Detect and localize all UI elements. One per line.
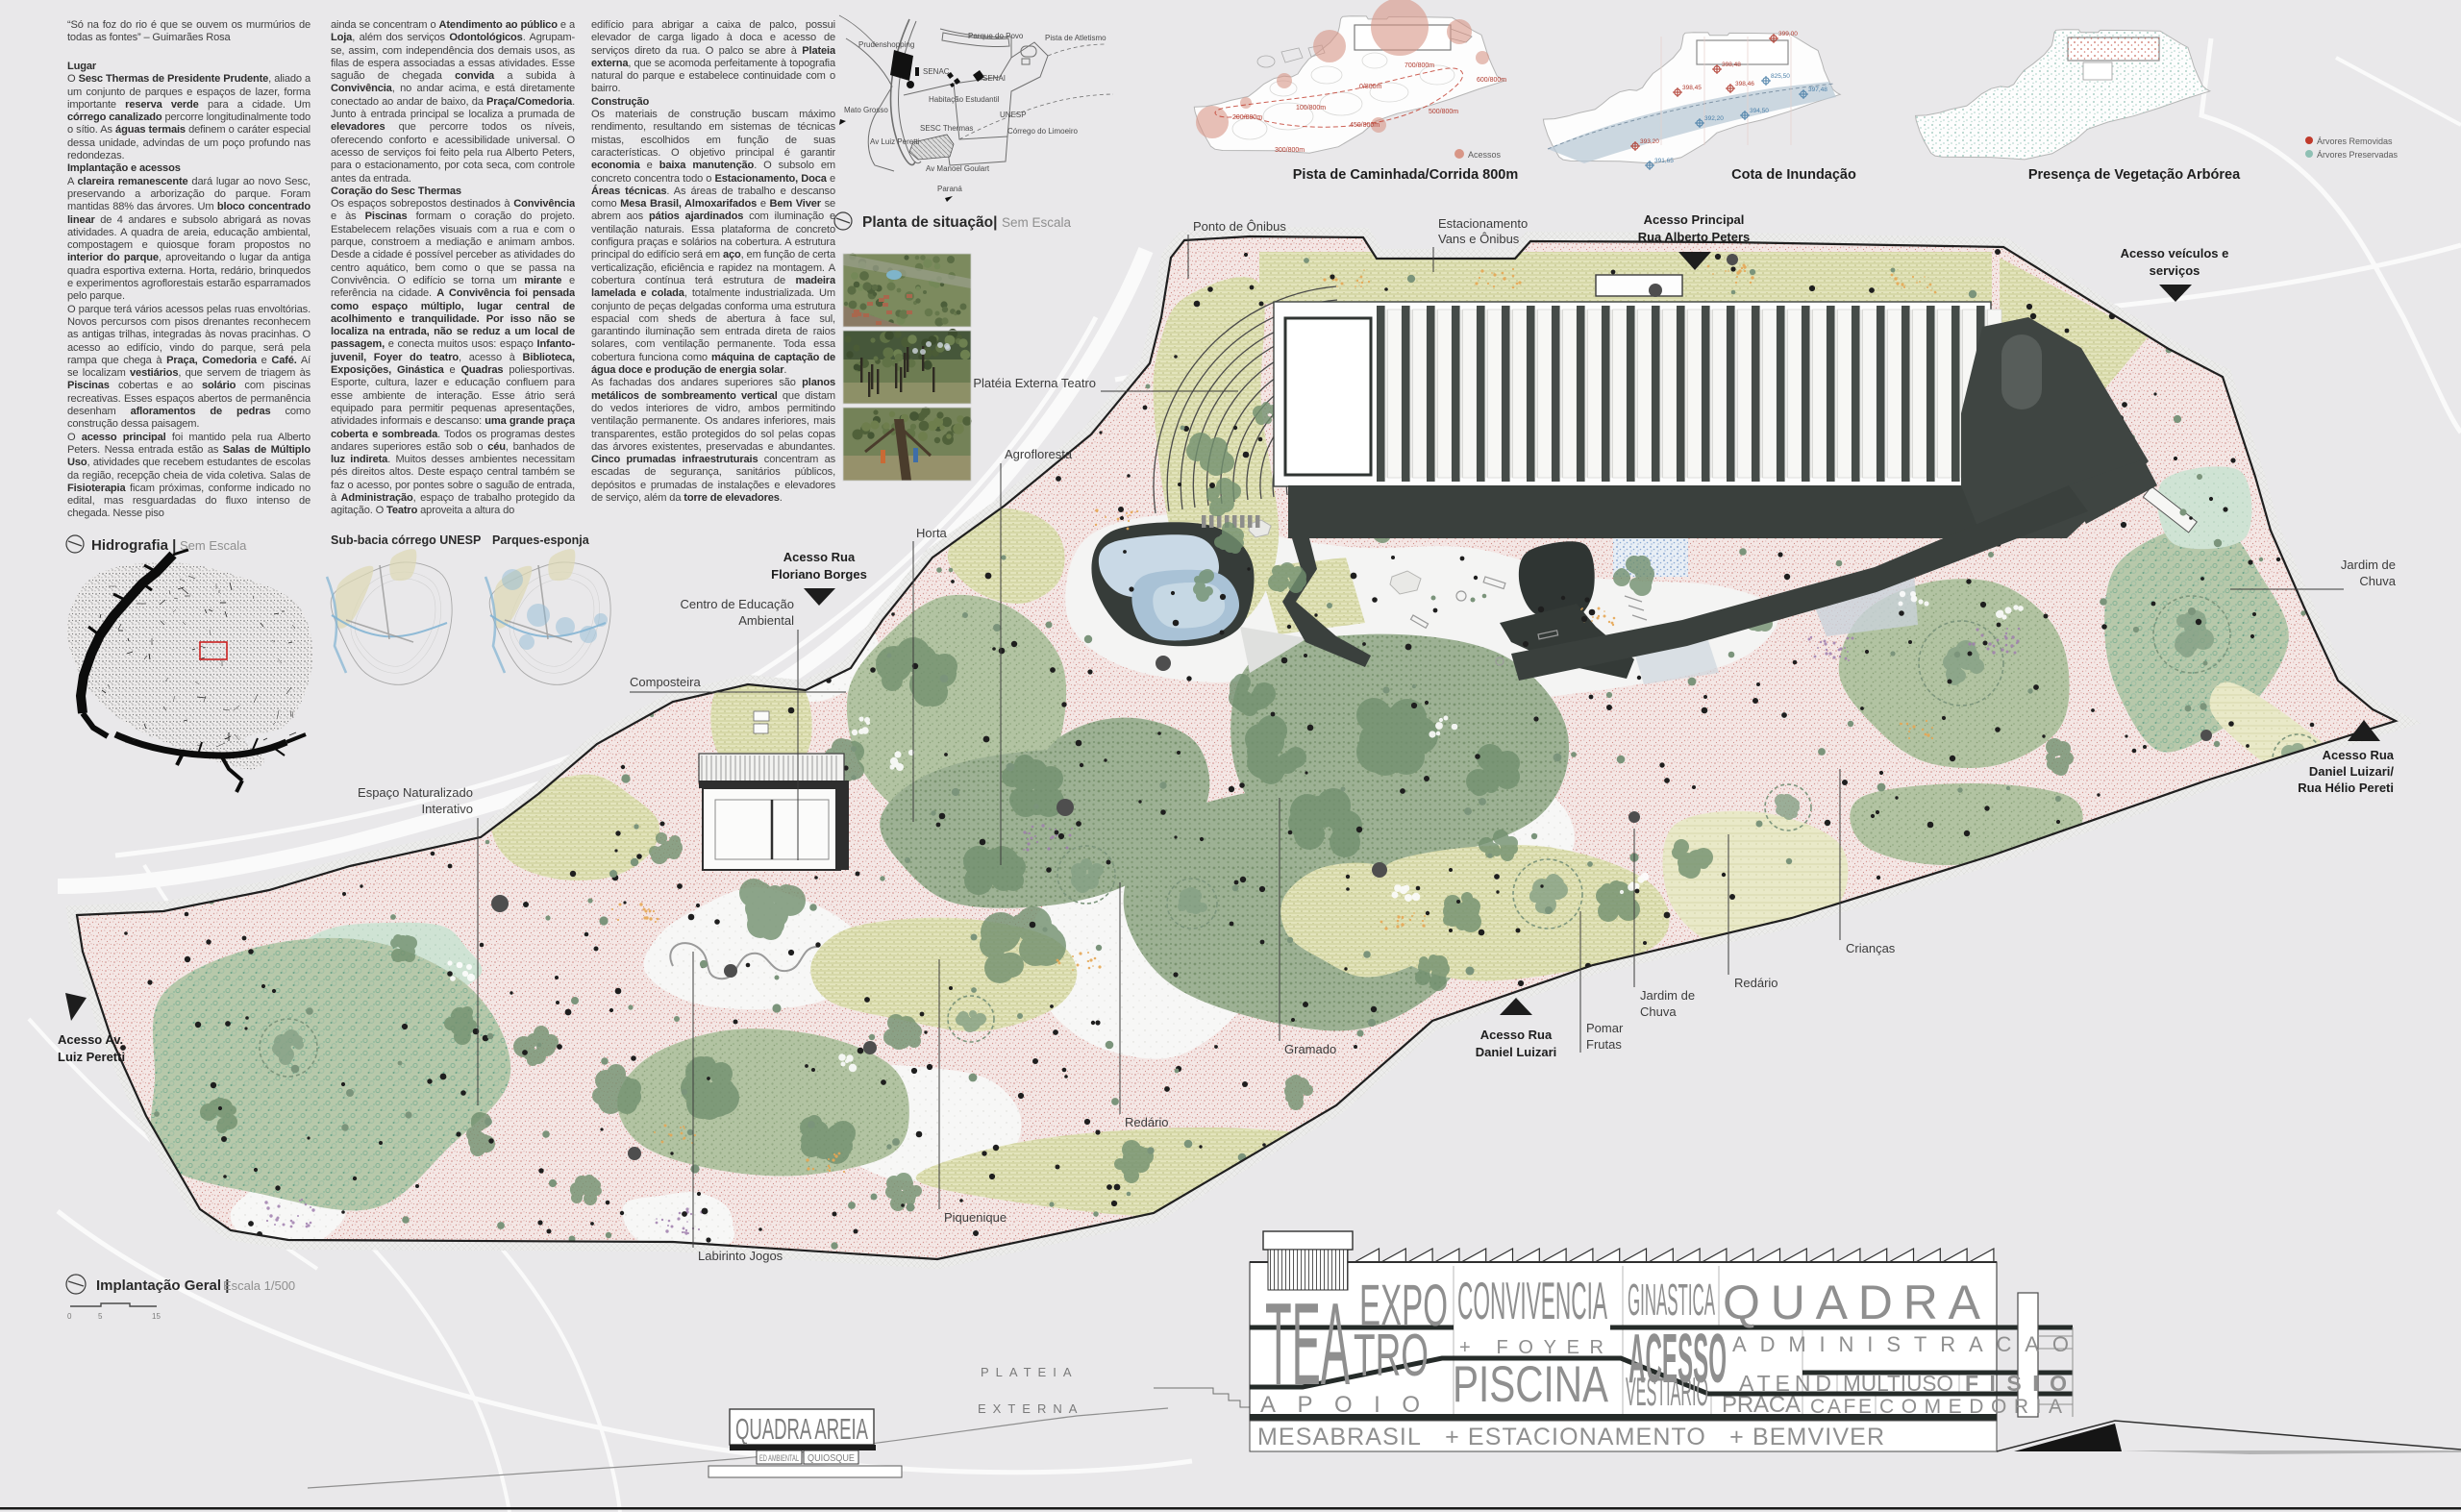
svg-text:Pomar: Pomar xyxy=(1586,1021,1624,1035)
svg-text:5: 5 xyxy=(98,1312,103,1321)
svg-text:Centro de Educação: Centro de Educação xyxy=(680,597,794,611)
svg-text:397,48: 397,48 xyxy=(1808,87,1827,93)
svg-text:Implantação Geral |: Implantação Geral | xyxy=(96,1277,229,1294)
svg-text:Cota de Inundação: Cota de Inundação xyxy=(1731,167,1856,183)
svg-text:Crianças: Crianças xyxy=(1846,941,1896,955)
svg-text:Jardim de: Jardim de xyxy=(1640,988,1695,1003)
svg-text:Árvores Removidas: Árvores Removidas xyxy=(2317,136,2393,146)
svg-text:Córrego do Limoeiro: Córrego do Limoeiro xyxy=(1007,127,1078,136)
svg-text:Chuva: Chuva xyxy=(1640,1004,1677,1019)
svg-text:0/800m: 0/800m xyxy=(1359,84,1382,90)
svg-text:Agrofloresta: Agrofloresta xyxy=(1005,447,1073,461)
svg-text:Acesso Principal: Acesso Principal xyxy=(1644,212,1745,227)
svg-text:EXTERNA: EXTERNA xyxy=(978,1401,1083,1416)
svg-text:Hidrografia |: Hidrografia | xyxy=(91,537,176,554)
svg-text:Parques-esponja: Parques-esponja xyxy=(492,533,590,547)
svg-text:Vans e Ônibus: Vans e Ônibus xyxy=(1438,232,1520,246)
svg-text:200/800m: 200/800m xyxy=(1232,114,1262,121)
svg-text:391,65: 391,65 xyxy=(1654,158,1674,164)
svg-text:PLATEIA: PLATEIA xyxy=(981,1365,1079,1379)
svg-text:QUADRA AREIA: QUADRA AREIA xyxy=(735,1412,868,1446)
svg-text:100/800m: 100/800m xyxy=(1296,105,1326,112)
svg-text:Sub-bacia córrego UNESP: Sub-bacia córrego UNESP xyxy=(331,533,481,547)
svg-text:Acesso veículos e: Acesso veículos e xyxy=(2121,246,2229,260)
svg-text:Floriano Borges: Floriano Borges xyxy=(771,567,867,582)
svg-text:SENAI: SENAI xyxy=(982,74,1006,83)
svg-text:Escala 1/500: Escala 1/500 xyxy=(223,1278,295,1293)
svg-text:VESTIARIO: VESTIARIO xyxy=(1626,1369,1708,1414)
svg-text:Acesso Rua: Acesso Rua xyxy=(1480,1028,1553,1042)
svg-text:398,45: 398,45 xyxy=(1682,85,1702,91)
svg-text:Platéia Externa Teatro: Platéia Externa Teatro xyxy=(973,376,1096,390)
svg-text:CONVIVENCIA: CONVIVENCIA xyxy=(1457,1271,1607,1330)
svg-text:Sem Escala: Sem Escala xyxy=(180,538,247,553)
svg-text:Pista de Caminhada/Corrida 800: Pista de Caminhada/Corrida 800m xyxy=(1293,167,1519,183)
svg-text:Composteira: Composteira xyxy=(630,675,701,689)
svg-text:450/800m: 450/800m xyxy=(1350,122,1380,129)
svg-text:Gramado: Gramado xyxy=(1284,1042,1336,1056)
svg-text:PRACA: PRACA xyxy=(1722,1392,1801,1418)
svg-text:Daniel Luizari: Daniel Luizari xyxy=(1476,1045,1557,1059)
svg-text:Jardim de: Jardim de xyxy=(2341,558,2396,572)
svg-text:Horta: Horta xyxy=(916,526,948,540)
svg-text:Acesso Rua: Acesso Rua xyxy=(783,550,856,564)
svg-text:398,48: 398,48 xyxy=(1722,62,1741,68)
svg-text:TRO: TRO xyxy=(1354,1323,1429,1389)
svg-text:Redário: Redário xyxy=(1734,976,1778,990)
svg-text:600/800m: 600/800m xyxy=(1477,77,1506,84)
svg-text:Chuva: Chuva xyxy=(2359,574,2396,588)
svg-text:Daniel Luizari/: Daniel Luizari/ xyxy=(2309,764,2395,779)
svg-text:Planta de situação|: Planta de situação| xyxy=(862,214,997,231)
svg-text:Acesso Rua: Acesso Rua xyxy=(2323,748,2395,762)
svg-text:Rua Alberto Peters: Rua Alberto Peters xyxy=(1638,230,1751,244)
svg-text:Prudenshopping: Prudenshopping xyxy=(858,40,914,49)
svg-text:Paraná: Paraná xyxy=(937,185,962,193)
svg-text:Av Luiz Peretti: Av Luiz Peretti xyxy=(870,137,920,146)
svg-text:398,46: 398,46 xyxy=(1735,81,1754,87)
svg-text:QUIOSQUE: QUIOSQUE xyxy=(808,1453,855,1464)
svg-text:15: 15 xyxy=(152,1312,161,1321)
svg-text:Ambiental: Ambiental xyxy=(738,613,794,628)
svg-text:Ponto de Ônibus: Ponto de Ônibus xyxy=(1193,219,1286,234)
svg-text:393,20: 393,20 xyxy=(1640,138,1659,145)
svg-text:Estacionamento: Estacionamento xyxy=(1438,216,1528,231)
svg-text:825,50: 825,50 xyxy=(1771,73,1790,80)
svg-text:Acesso Av.: Acesso Av. xyxy=(58,1032,123,1047)
svg-text:ED AMBIENTAL: ED AMBIENTAL xyxy=(759,1453,799,1463)
svg-text:Piquenique: Piquenique xyxy=(944,1210,1007,1225)
svg-text:700/800m: 700/800m xyxy=(1405,62,1434,69)
svg-text:Rua Hélio Pereti: Rua Hélio Pereti xyxy=(2298,781,2394,795)
svg-text:Sem Escala: Sem Escala xyxy=(1002,215,1072,230)
svg-text:Frutas: Frutas xyxy=(1586,1037,1622,1052)
svg-text:Interativo: Interativo xyxy=(422,802,473,816)
svg-text:serviços: serviços xyxy=(2150,263,2200,278)
svg-text:Acessos: Acessos xyxy=(1468,150,1502,160)
svg-text:PISCINA: PISCINA xyxy=(1453,1356,1608,1413)
svg-text:Presença de Vegetação Arbórea: Presença de Vegetação Arbórea xyxy=(2028,167,2241,183)
svg-text:394,50: 394,50 xyxy=(1750,108,1769,114)
svg-text:0: 0 xyxy=(67,1312,72,1321)
svg-text:392,20: 392,20 xyxy=(1704,115,1724,122)
svg-text:300/800m: 300/800m xyxy=(1275,147,1305,154)
svg-text:Av Manoel Goulart: Av Manoel Goulart xyxy=(926,164,990,173)
svg-text:GINASTICA: GINASTICA xyxy=(1628,1275,1715,1325)
svg-text:Árvores Preservadas: Árvores Preservadas xyxy=(2317,150,2399,160)
svg-text:Habitação Estudantil: Habitação Estudantil xyxy=(929,95,1000,104)
svg-text:500/800m: 500/800m xyxy=(1429,109,1458,115)
svg-text:TEA: TEA xyxy=(1265,1278,1350,1409)
svg-text:UNESP: UNESP xyxy=(1000,111,1027,119)
svg-text:SESC Thermas: SESC Thermas xyxy=(920,124,973,133)
svg-text:Espaço Naturalizado: Espaço Naturalizado xyxy=(358,785,473,800)
svg-text:Parque do Povo: Parque do Povo xyxy=(968,32,1024,40)
svg-text:Labirinto Jogos: Labirinto Jogos xyxy=(698,1249,783,1263)
svg-text:Pista de Atletismo: Pista de Atletismo xyxy=(1045,34,1106,42)
svg-text:MULTIUSO: MULTIUSO xyxy=(1843,1371,1953,1396)
svg-text:Redário: Redário xyxy=(1125,1115,1169,1129)
svg-text:SENAC: SENAC xyxy=(923,67,950,76)
svg-text:Luiz Peretti: Luiz Peretti xyxy=(58,1050,125,1064)
svg-text:Mato Grosso: Mato Grosso xyxy=(844,106,888,114)
svg-text:399,00: 399,00 xyxy=(1778,31,1798,37)
svg-text:MESABRASIL + ESTACIONAMENTO: MESABRASIL + ESTACIONAMENTO + BEMVIVER xyxy=(1257,1424,1884,1450)
